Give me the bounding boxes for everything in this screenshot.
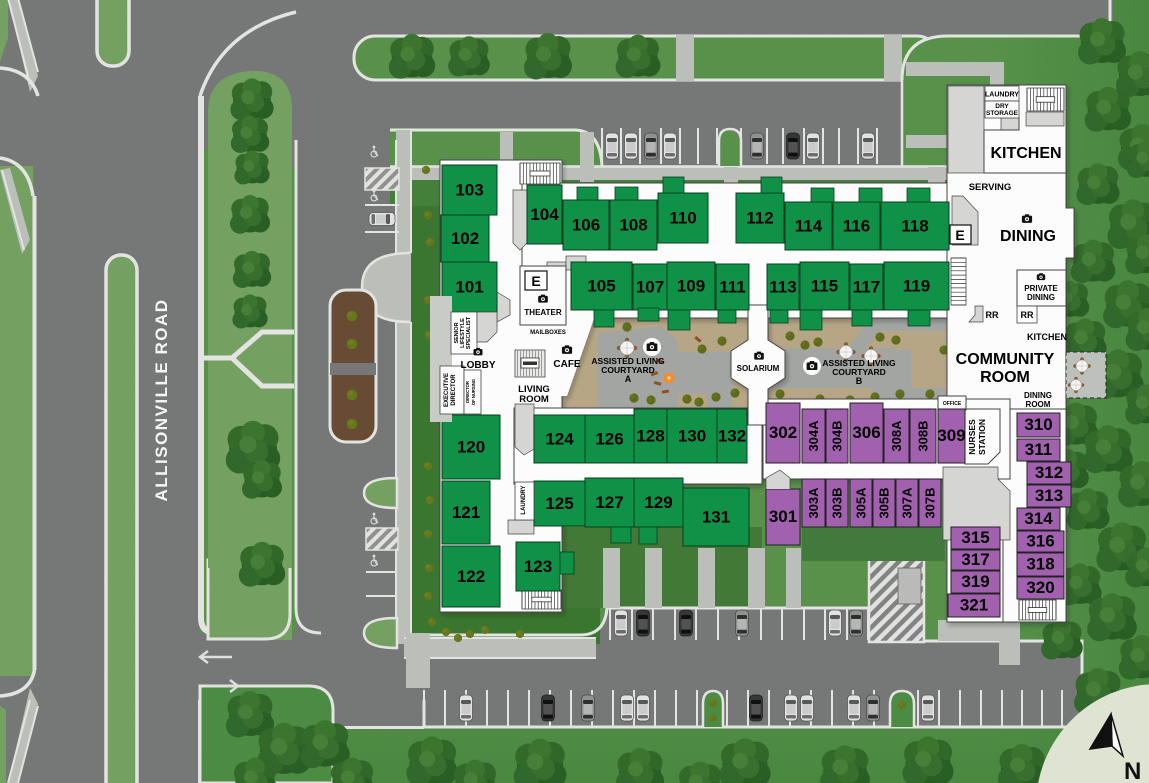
svg-text:ROOM: ROOM bbox=[1026, 400, 1051, 409]
svg-text:111: 111 bbox=[719, 278, 746, 297]
svg-text:E: E bbox=[531, 273, 540, 289]
svg-text:104: 104 bbox=[530, 205, 559, 224]
svg-text:OFFICE: OFFICE bbox=[943, 401, 962, 407]
svg-text:CAFE: CAFE bbox=[553, 359, 581, 370]
svg-text:MAILBOXES: MAILBOXES bbox=[530, 330, 566, 336]
svg-text:117: 117 bbox=[853, 278, 880, 297]
svg-text:101: 101 bbox=[455, 278, 483, 297]
svg-text:115: 115 bbox=[811, 277, 838, 296]
svg-text:128: 128 bbox=[636, 427, 664, 446]
svg-text:108: 108 bbox=[619, 216, 647, 235]
svg-text:OF NURSING: OF NURSING bbox=[471, 379, 476, 405]
svg-text:105: 105 bbox=[587, 277, 615, 296]
svg-text:ALLISONVILLE ROAD: ALLISONVILLE ROAD bbox=[152, 298, 171, 501]
svg-text:126: 126 bbox=[595, 430, 623, 449]
svg-text:DIRECTOR: DIRECTOR bbox=[465, 381, 470, 403]
svg-text:131: 131 bbox=[702, 508, 730, 527]
svg-text:113: 113 bbox=[769, 278, 796, 297]
svg-text:124: 124 bbox=[545, 430, 574, 449]
svg-text:303A: 303A bbox=[806, 487, 821, 519]
svg-text:308A: 308A bbox=[889, 420, 904, 452]
svg-text:313: 313 bbox=[1035, 486, 1063, 505]
svg-text:305A: 305A bbox=[854, 487, 869, 519]
svg-text:306: 306 bbox=[852, 423, 880, 442]
svg-text:317: 317 bbox=[961, 550, 989, 569]
svg-text:KITCHEN: KITCHEN bbox=[990, 145, 1061, 162]
svg-text:PRIVATE: PRIVATE bbox=[1024, 284, 1058, 293]
svg-text:RR: RR bbox=[1021, 310, 1034, 320]
svg-text:SPECIALIST: SPECIALIST bbox=[466, 316, 472, 349]
svg-text:312: 312 bbox=[1035, 463, 1063, 482]
svg-text:SOLARIUM: SOLARIUM bbox=[737, 364, 780, 373]
svg-text:309: 309 bbox=[937, 426, 965, 445]
svg-text:119: 119 bbox=[903, 277, 930, 296]
svg-text:321: 321 bbox=[960, 596, 988, 615]
svg-text:114: 114 bbox=[795, 217, 823, 236]
svg-text:RR: RR bbox=[986, 310, 999, 320]
svg-text:LAUNDRY: LAUNDRY bbox=[521, 485, 527, 514]
svg-text:B: B bbox=[856, 376, 863, 386]
svg-text:308B: 308B bbox=[916, 420, 931, 451]
svg-text:DINING: DINING bbox=[1000, 228, 1056, 245]
svg-text:DINING: DINING bbox=[1027, 293, 1055, 302]
svg-text:E: E bbox=[955, 227, 964, 243]
svg-text:310: 310 bbox=[1024, 415, 1052, 434]
svg-text:305B: 305B bbox=[877, 487, 892, 518]
svg-text:109: 109 bbox=[677, 277, 705, 296]
svg-text:311: 311 bbox=[1025, 440, 1052, 459]
svg-text:102: 102 bbox=[451, 229, 479, 248]
svg-text:DINING: DINING bbox=[1024, 391, 1052, 400]
svg-text:125: 125 bbox=[545, 494, 573, 513]
svg-text:STATION: STATION bbox=[977, 419, 987, 455]
svg-text:318: 318 bbox=[1026, 555, 1054, 574]
svg-text:118: 118 bbox=[901, 217, 928, 236]
svg-text:NURSES: NURSES bbox=[967, 419, 977, 455]
svg-text:127: 127 bbox=[595, 493, 623, 512]
svg-text:319: 319 bbox=[961, 572, 989, 591]
svg-text:DIRECTOR: DIRECTOR bbox=[451, 374, 457, 406]
svg-text:106: 106 bbox=[572, 216, 600, 235]
svg-text:121: 121 bbox=[452, 503, 480, 522]
svg-text:SERVING: SERVING bbox=[969, 182, 1012, 193]
svg-text:130: 130 bbox=[678, 427, 706, 446]
svg-text:302: 302 bbox=[769, 423, 797, 442]
svg-text:COMMUNITY: COMMUNITY bbox=[956, 351, 1055, 368]
svg-text:129: 129 bbox=[644, 493, 672, 512]
svg-text:ROOM: ROOM bbox=[980, 369, 1030, 386]
svg-text:KITCHEN: KITCHEN bbox=[1027, 332, 1067, 342]
svg-text:304A: 304A bbox=[806, 420, 821, 452]
svg-text:A: A bbox=[625, 374, 632, 384]
svg-text:320: 320 bbox=[1026, 578, 1054, 597]
svg-text:120: 120 bbox=[457, 438, 485, 457]
svg-text:N: N bbox=[1124, 758, 1141, 783]
svg-text:116: 116 bbox=[843, 217, 870, 236]
svg-text:103: 103 bbox=[455, 181, 483, 200]
svg-text:LAUNDRY: LAUNDRY bbox=[985, 92, 1019, 99]
svg-text:THEATER: THEATER bbox=[524, 308, 561, 317]
svg-text:123: 123 bbox=[524, 557, 552, 576]
svg-text:132: 132 bbox=[718, 427, 746, 446]
svg-text:112: 112 bbox=[746, 209, 773, 228]
svg-text:STORAGE: STORAGE bbox=[986, 110, 1019, 117]
svg-text:122: 122 bbox=[457, 567, 485, 586]
svg-text:314: 314 bbox=[1024, 509, 1053, 528]
svg-text:EXECUTIVE: EXECUTIVE bbox=[444, 373, 450, 407]
svg-text:303B: 303B bbox=[830, 487, 845, 518]
svg-text:316: 316 bbox=[1026, 532, 1054, 551]
svg-text:LOBBY: LOBBY bbox=[461, 360, 496, 371]
svg-text:107: 107 bbox=[636, 278, 664, 297]
svg-text:315: 315 bbox=[961, 528, 989, 547]
svg-text:DRY: DRY bbox=[995, 103, 1009, 110]
svg-text:304B: 304B bbox=[830, 420, 845, 451]
svg-text:301: 301 bbox=[769, 507, 797, 526]
svg-text:110: 110 bbox=[669, 209, 696, 228]
svg-text:307A: 307A bbox=[900, 487, 915, 519]
svg-text:ROOM: ROOM bbox=[519, 394, 549, 405]
svg-text:307B: 307B bbox=[923, 487, 938, 518]
